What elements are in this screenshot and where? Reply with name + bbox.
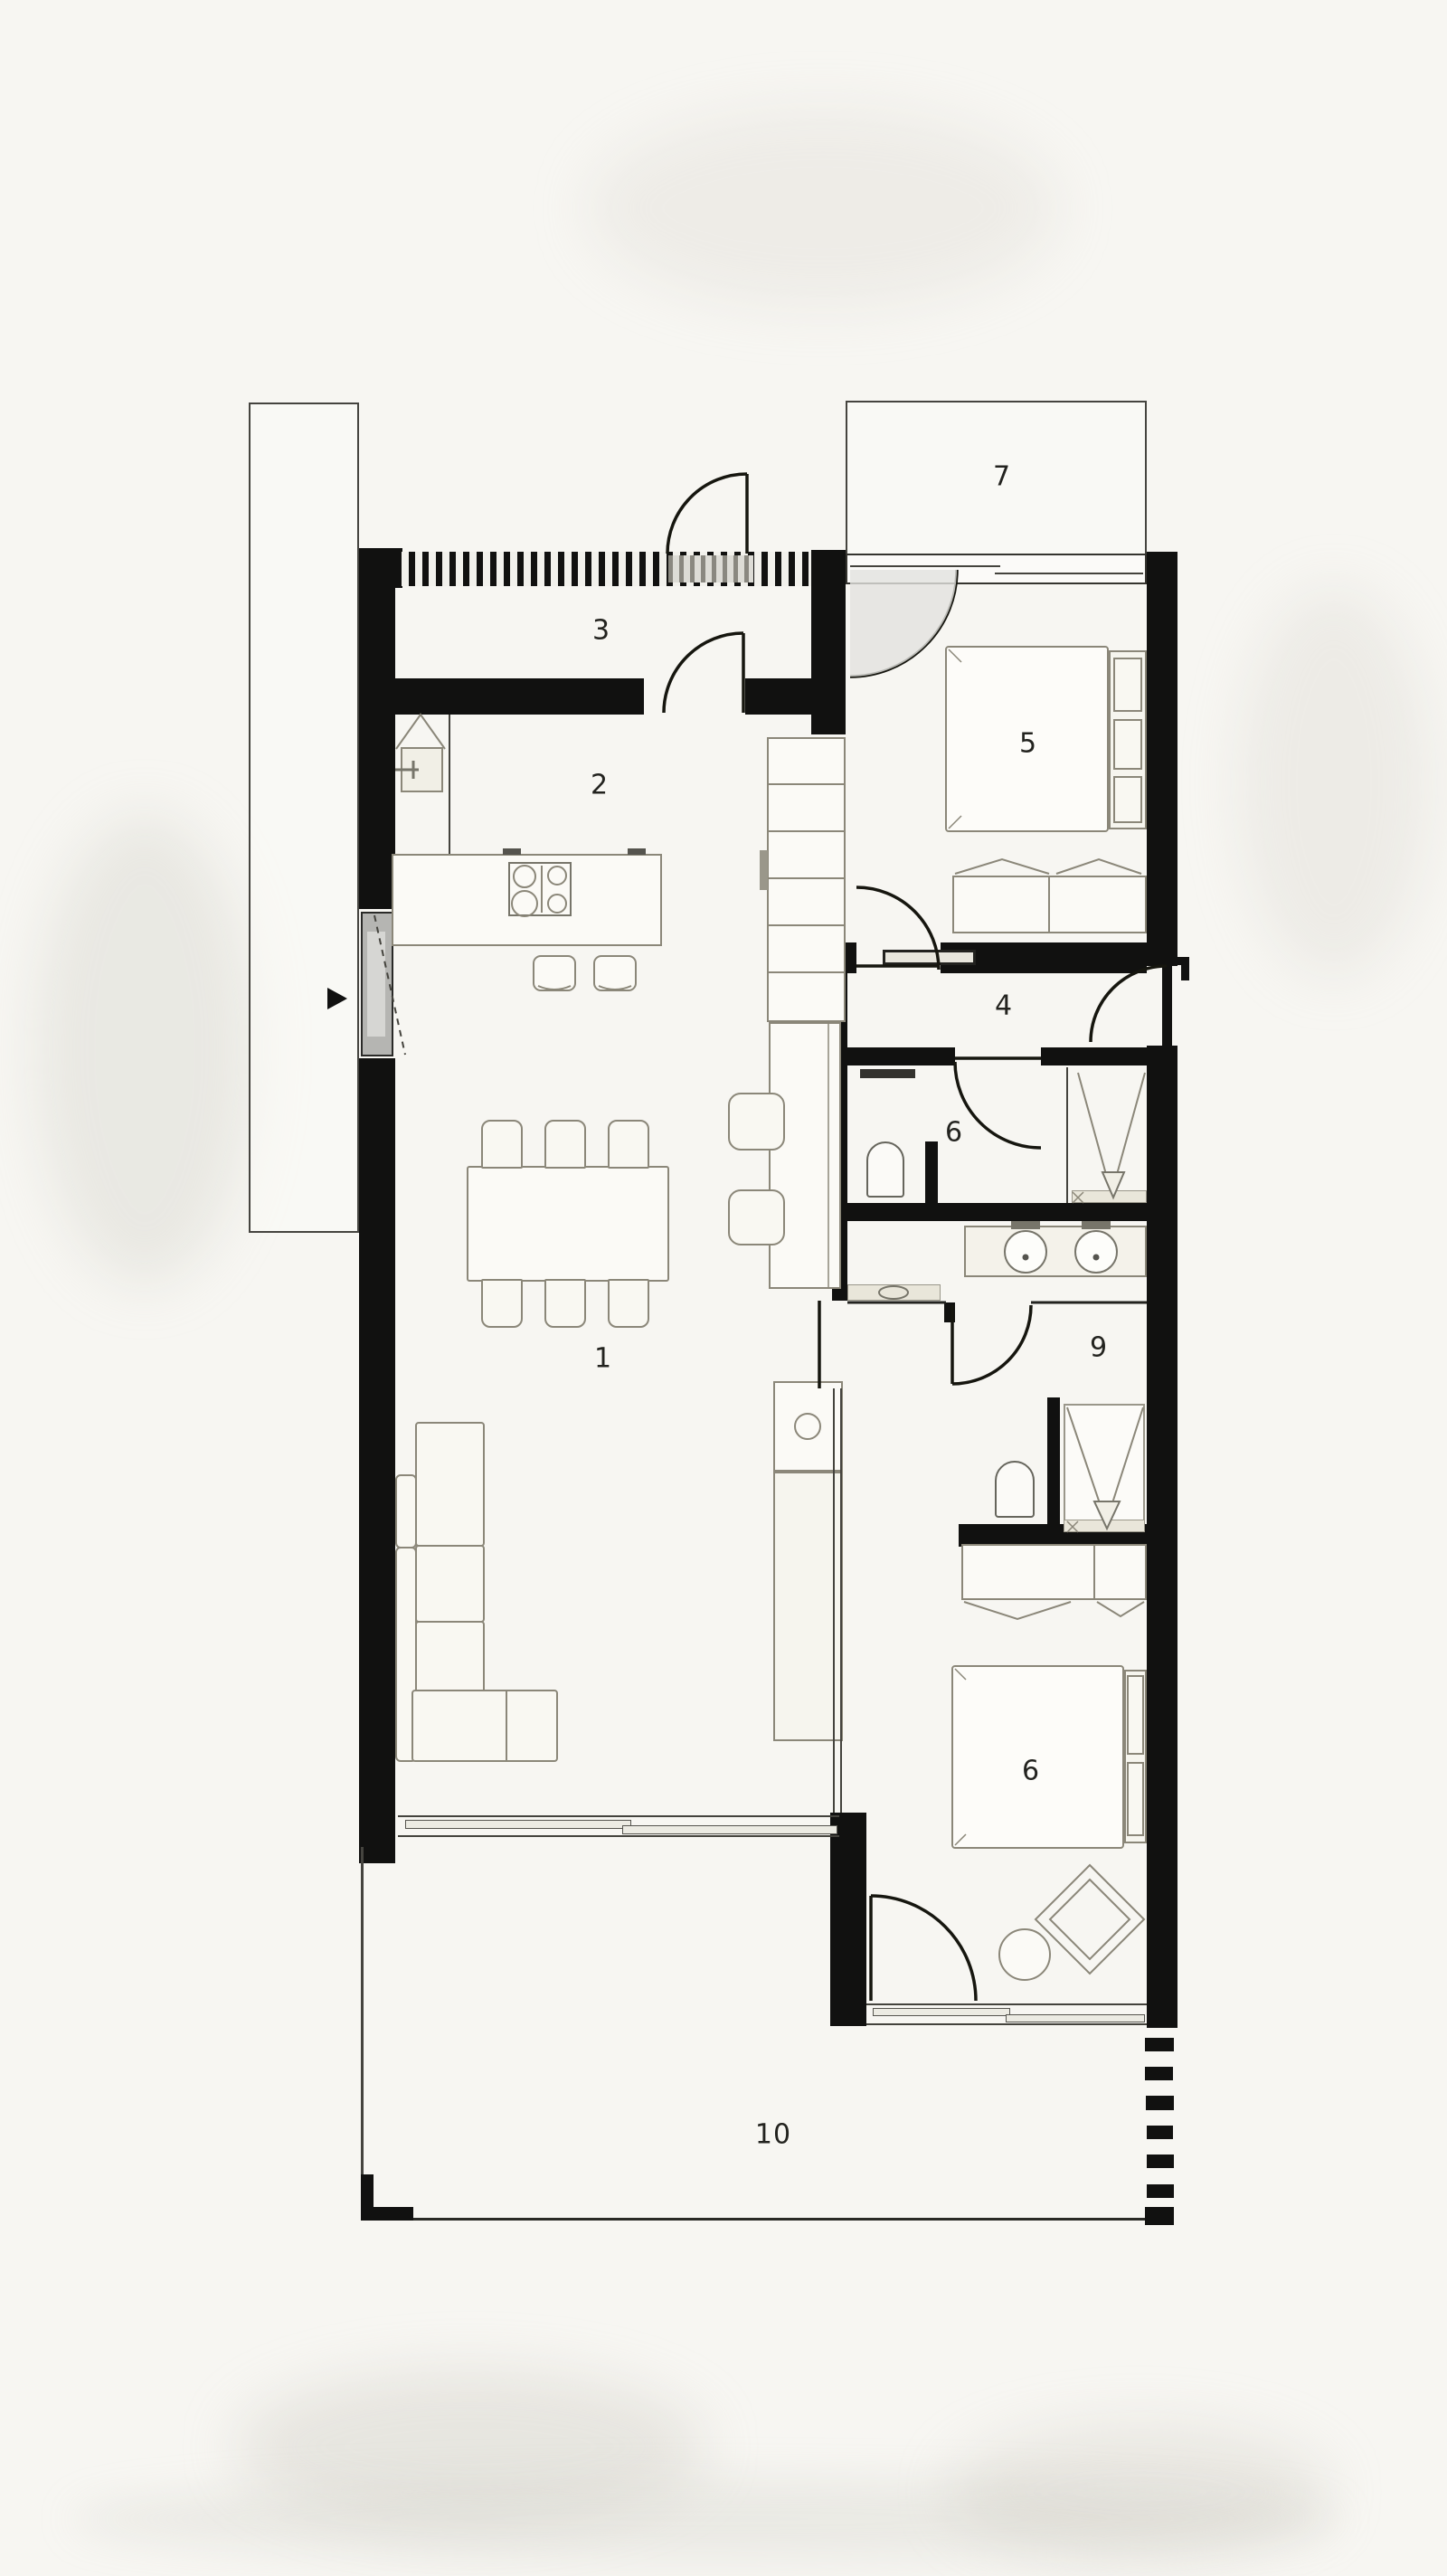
island-handle bbox=[503, 848, 521, 855]
bar-stool bbox=[593, 955, 637, 991]
office-chair bbox=[728, 1189, 785, 1245]
sideboard bbox=[773, 1472, 843, 1741]
room-label-bedroom-top: 5 bbox=[1019, 728, 1037, 760]
entry-door-leaf bbox=[1162, 964, 1172, 1046]
dining-chair bbox=[481, 1279, 523, 1328]
paper-texture bbox=[588, 109, 1058, 308]
terrace-edge bbox=[361, 2218, 1163, 2221]
pillow bbox=[1113, 719, 1142, 770]
washbasin-counter bbox=[847, 1284, 941, 1301]
door-arc bbox=[664, 633, 743, 713]
paper-texture bbox=[72, 2478, 1338, 2560]
paper-texture bbox=[36, 814, 253, 1284]
wall-wc-partition bbox=[925, 1141, 938, 1217]
dresser bbox=[952, 876, 1147, 933]
toilet-icon bbox=[995, 1461, 1035, 1518]
sofa-armrest bbox=[395, 1474, 417, 1548]
room-label-bathroom: 6 bbox=[945, 1117, 963, 1149]
kitchen-sink-icon bbox=[401, 747, 443, 792]
entry-threshold bbox=[668, 555, 753, 582]
wall-left-upper bbox=[359, 548, 395, 909]
dining-chair bbox=[608, 1120, 649, 1169]
door-arc bbox=[955, 1062, 1041, 1148]
boundary-dash bbox=[1146, 2096, 1174, 2110]
office-chair bbox=[728, 1093, 785, 1151]
pillow bbox=[1127, 1675, 1144, 1755]
door-swing-shade bbox=[850, 570, 957, 677]
wall-niche-shelf bbox=[883, 950, 976, 965]
side-yard-outline bbox=[249, 402, 359, 1233]
open-door-mark bbox=[964, 1602, 1071, 1619]
room-label-living: 1 bbox=[594, 1343, 612, 1375]
dining-chair bbox=[544, 1120, 586, 1169]
wall-corridor-bath bbox=[1041, 1047, 1147, 1065]
shower-bench bbox=[1072, 1190, 1147, 1203]
sliding-door-panel bbox=[405, 1820, 631, 1829]
sofa-cushion bbox=[415, 1545, 485, 1623]
door-hinge-block bbox=[944, 1302, 955, 1322]
door-handle bbox=[1181, 957, 1189, 980]
sofa-cushion bbox=[415, 1621, 485, 1693]
door-arc bbox=[850, 570, 957, 677]
door-arc bbox=[1091, 966, 1167, 1042]
shower-bench bbox=[1064, 1520, 1145, 1532]
toilet-icon bbox=[866, 1141, 904, 1198]
rug-diamond bbox=[1036, 1865, 1144, 1974]
boundary-dash bbox=[1147, 2126, 1173, 2139]
vanity-counter bbox=[964, 1226, 1147, 1277]
paper-texture bbox=[235, 2370, 705, 2524]
cooktop-icon bbox=[508, 862, 572, 916]
boundary-dash bbox=[1147, 2184, 1174, 2198]
room-label-corridor: 4 bbox=[995, 990, 1013, 1022]
boundary-dash bbox=[1145, 2067, 1173, 2080]
room-label-terrace-bottom: 10 bbox=[755, 2119, 791, 2151]
wall-entry-kitchen bbox=[745, 678, 846, 715]
sliding-door-panel bbox=[622, 1825, 837, 1834]
boundary-dash bbox=[1145, 2038, 1174, 2051]
pillow bbox=[1113, 658, 1142, 712]
wall-right-lower bbox=[1147, 1046, 1177, 2028]
boundary-dash bbox=[1147, 2155, 1174, 2168]
room-label-entry: 3 bbox=[592, 615, 610, 647]
shower-tray bbox=[1064, 1404, 1145, 1525]
sliding-door-panel bbox=[1006, 2014, 1145, 2022]
rug-diamond-inner bbox=[1050, 1880, 1130, 1959]
dining-chair bbox=[544, 1279, 586, 1328]
open-door-mark bbox=[955, 859, 1049, 874]
dining-chair bbox=[481, 1120, 523, 1169]
terrace-corner-mark bbox=[1145, 2207, 1174, 2225]
faucet-icon bbox=[1082, 1221, 1111, 1229]
wall-entry-kitchen bbox=[395, 678, 644, 715]
wall-end-block bbox=[1149, 1990, 1174, 2028]
paper-texture bbox=[1239, 588, 1429, 977]
room-label-bedroom-bottom: 6 bbox=[1022, 1756, 1040, 1787]
sink-icon bbox=[396, 715, 445, 749]
wall-stub bbox=[830, 1813, 866, 2026]
pillow bbox=[1113, 776, 1142, 823]
door-arc bbox=[871, 1896, 976, 2001]
cabinet-handle bbox=[760, 850, 768, 890]
bar-stool bbox=[533, 955, 576, 991]
terrace-corner-mark bbox=[361, 2207, 413, 2221]
terrace-edge bbox=[361, 1847, 364, 2221]
plan-overlay bbox=[0, 0, 1447, 2576]
room-label-kitchen: 2 bbox=[591, 770, 609, 801]
sofa-chaise bbox=[411, 1690, 558, 1762]
pouf-icon bbox=[999, 1929, 1050, 1980]
island-handle bbox=[628, 848, 646, 855]
room-label-ensuite: 9 bbox=[1090, 1332, 1108, 1364]
desk bbox=[769, 1022, 841, 1289]
sliding-window-pane bbox=[367, 932, 385, 1037]
dining-table bbox=[467, 1166, 669, 1282]
paper-texture bbox=[950, 2424, 1329, 2560]
door-arc bbox=[667, 474, 747, 554]
sideboard-top bbox=[773, 1381, 843, 1472]
tall-cabinets bbox=[767, 737, 846, 1022]
wall-right-upper bbox=[1147, 552, 1177, 966]
shower-glass-line bbox=[1078, 1073, 1145, 1178]
dining-chair bbox=[608, 1279, 649, 1328]
sofa-cushion bbox=[415, 1422, 485, 1547]
floor-plan-canvas: 1 2 3 4 5 6 7 9 6 10 bbox=[0, 0, 1447, 2576]
window-band bbox=[846, 554, 1147, 584]
pillow bbox=[1127, 1762, 1144, 1836]
wardrobe bbox=[961, 1544, 1147, 1600]
sliding-door-panel bbox=[873, 2008, 1010, 2016]
wall-left-lower bbox=[359, 1058, 395, 1863]
wall-shower bbox=[1047, 1397, 1060, 1529]
towel-bar bbox=[860, 1069, 915, 1078]
open-door-mark bbox=[1056, 859, 1141, 874]
wall-bath-bottom bbox=[832, 1203, 1147, 1221]
faucet-icon bbox=[1011, 1221, 1040, 1229]
door-arc bbox=[952, 1305, 1031, 1384]
wall-corridor-bath bbox=[846, 1047, 955, 1065]
room-label-terrace-top: 7 bbox=[993, 461, 1011, 493]
open-door-mark bbox=[1097, 1602, 1144, 1616]
